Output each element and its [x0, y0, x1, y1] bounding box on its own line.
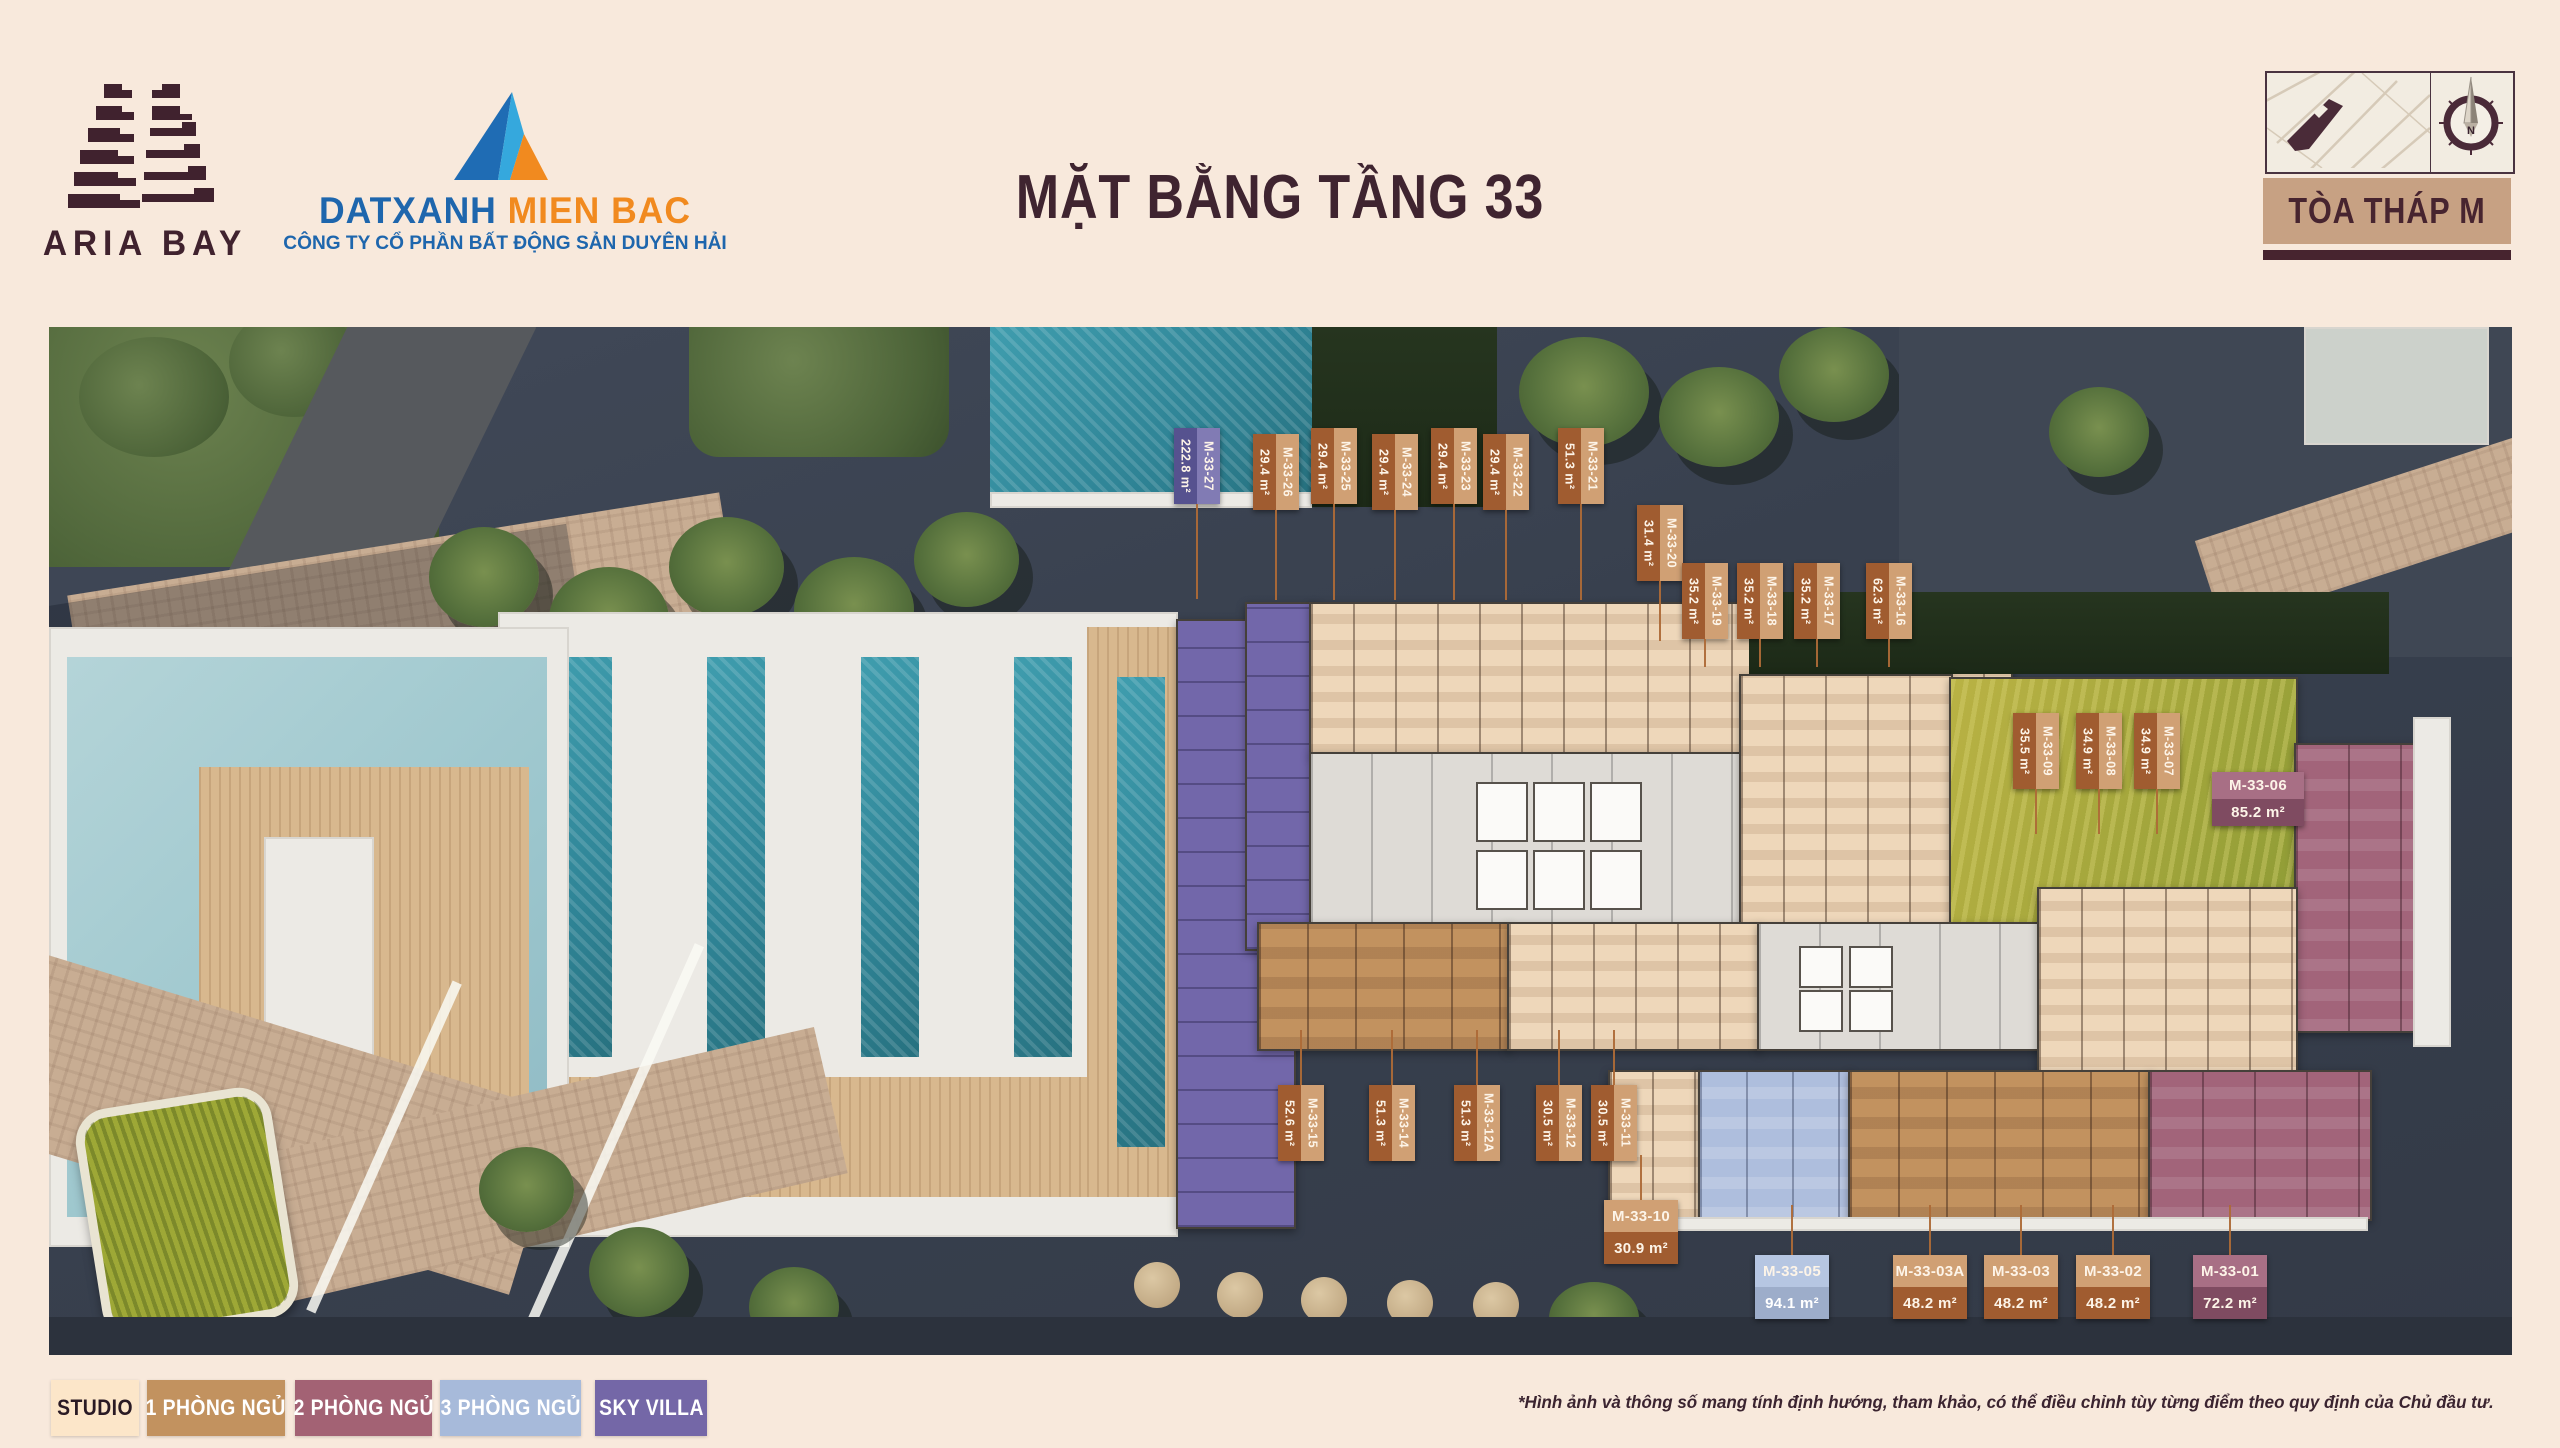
- building-units-bottom-1br: [1848, 1070, 2152, 1221]
- building-units-studio-mid: [1507, 922, 1761, 1051]
- tree-cluster: [689, 327, 949, 457]
- legend-chip-3-ph-ng-ng-: 3 PHÒNG NGỦ: [440, 1380, 581, 1436]
- building-units-bottom-2br: [2148, 1070, 2372, 1221]
- upper-pool: [990, 327, 1312, 492]
- site-plan-render: [49, 327, 2512, 1355]
- legend-chip-label: STUDIO: [57, 1395, 133, 1421]
- legend-chip-2-ph-ng-ng-: 2 PHÒNG NGỦ: [295, 1380, 432, 1436]
- legend-chip-label: 2 PHÒNG NGỦ: [293, 1395, 433, 1421]
- umbrella: [1217, 1272, 1263, 1318]
- compass-icon: N: [2431, 73, 2513, 172]
- building-core-mid: [1757, 922, 2041, 1051]
- page-title: MẶT BẰNG TẦNG 33: [944, 162, 1616, 233]
- palm-tree: [2049, 387, 2149, 477]
- lap-pool: [1014, 657, 1072, 1057]
- legend-chip-label: 3 PHÒNG NGỦ: [440, 1395, 580, 1421]
- building-unit-3br: [1698, 1070, 1852, 1221]
- tree-cluster: [79, 337, 229, 457]
- brand-name: ARIA BAY: [35, 224, 256, 264]
- lower-road: [49, 1317, 2512, 1355]
- hedge: [1312, 327, 1497, 507]
- agency-name-primary: DATXANH: [319, 190, 497, 231]
- balcony-edge: [2413, 717, 2451, 1047]
- disclaimer-note: *Hình ảnh và thông số mang tính định hướ…: [1308, 1392, 2493, 1413]
- tower-chip: TÒA THÁP M: [2263, 178, 2511, 244]
- palm-tree: [1659, 367, 1779, 467]
- pool-edge: [990, 492, 1312, 508]
- lap-pool: [707, 657, 765, 1057]
- agency-name-secondary: MIEN BAC: [497, 190, 691, 231]
- legend-chip-sky-villa: SKY VILLA: [595, 1380, 707, 1436]
- building-units-2br-right: [2294, 743, 2417, 1033]
- lap-pool: [861, 657, 919, 1057]
- umbrella: [1134, 1262, 1180, 1308]
- legend-chip-1-ph-ng-ng-: 1 PHÒNG NGỦ: [147, 1380, 285, 1436]
- mini-map: [2267, 73, 2431, 172]
- tower-chip-underline: [2263, 250, 2511, 260]
- floor-plan-poster: ARIA BAY DATXANH MIEN BAC CÔNG TY CỔ PHẦ…: [0, 0, 2560, 1448]
- legend-chip-label: 1 PHÒNG NGỦ: [146, 1395, 286, 1421]
- building-hedge-strip: [1749, 592, 2389, 674]
- agency-company-line: CÔNG TY CỔ PHẦN BẤT ĐỘNG SẢN DUYÊN HẢI: [240, 232, 769, 255]
- tower-chip-label: TÒA THÁP M: [2288, 190, 2485, 232]
- palm-tree: [1519, 337, 1649, 447]
- palm-tree: [589, 1227, 689, 1317]
- palm-tree: [1779, 327, 1889, 422]
- palm-tree: [669, 517, 784, 617]
- compass-north-letter: N: [2467, 125, 2475, 137]
- building-units-bottom-left: [1608, 1070, 1702, 1221]
- rooftop-structure: [2304, 327, 2489, 445]
- building-sky-villa-endcap: [1245, 602, 1319, 951]
- villa-pool: [1117, 677, 1165, 1147]
- palm-tree: [479, 1147, 574, 1232]
- palm-tree: [914, 512, 1019, 607]
- aria-bay-logo: [66, 82, 218, 224]
- datxanh-logo-icon: [448, 88, 560, 186]
- agency-name: DATXANH MIEN BAC: [265, 190, 745, 232]
- locator-panel: N: [2265, 71, 2515, 174]
- building-units-1br-mid: [1257, 922, 1511, 1051]
- legend-chip-label: SKY VILLA: [599, 1395, 704, 1421]
- green-planter: [71, 1083, 303, 1344]
- legend-chip-studio: STUDIO: [51, 1380, 139, 1436]
- balcony-edge-bottom: [1608, 1217, 2368, 1231]
